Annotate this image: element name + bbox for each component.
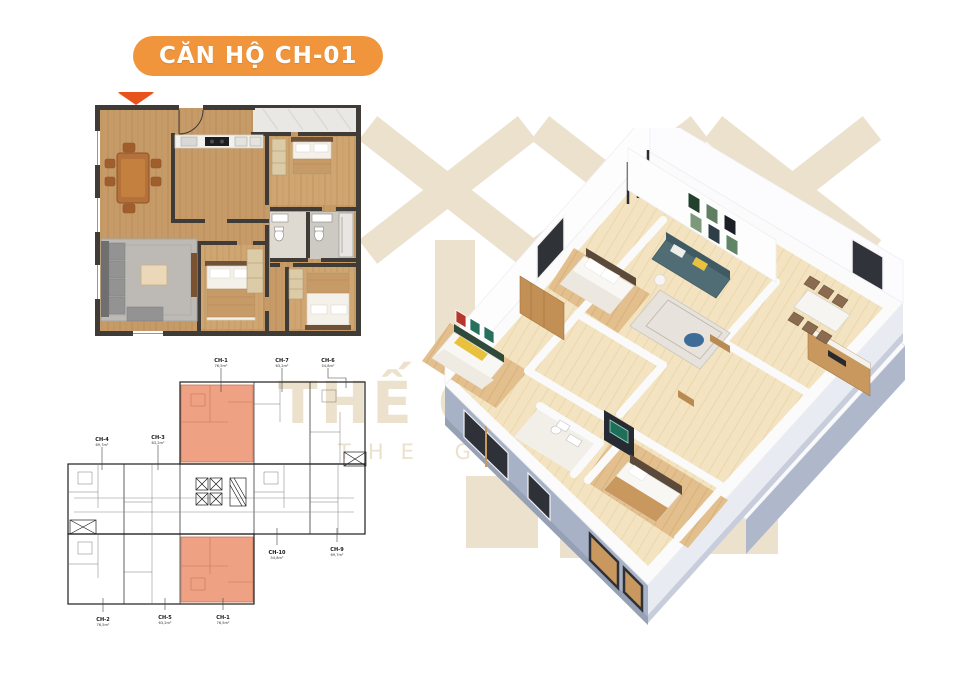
highlight-unit-top xyxy=(181,385,253,462)
flyer-page: { "badge": { "label": "CĂN HỘ CH-01" }, … xyxy=(0,0,960,678)
apartment-title-badge: CĂN HỘ CH-01 xyxy=(133,36,383,76)
balcony xyxy=(251,107,356,136)
svg-text:63,2m²: 63,2m² xyxy=(152,441,166,445)
tv-cabinet xyxy=(191,253,197,297)
kitchen-counter xyxy=(175,135,263,148)
wardrobe-2 xyxy=(247,249,263,293)
svg-text:69,7m²: 69,7m² xyxy=(331,553,345,557)
highlight-unit-bottom xyxy=(181,537,253,602)
living-room xyxy=(101,239,197,321)
bed-1 xyxy=(272,137,333,175)
svg-text:69,7m²: 69,7m² xyxy=(96,443,110,447)
svg-text:76,5m²: 76,5m² xyxy=(97,623,111,627)
sofa-back xyxy=(101,241,109,317)
svg-text:63,2m²: 63,2m² xyxy=(159,621,173,625)
svg-text:54,8m²: 54,8m² xyxy=(271,556,285,560)
elevator-core-icon xyxy=(196,478,246,506)
svg-text:63,2m²: 63,2m² xyxy=(276,364,290,368)
svg-text:76,5m²: 76,5m² xyxy=(217,621,231,625)
building-keyplan: CH-1 76,5m² CH-7 63,2m² CH-6 54,8m² CH-4… xyxy=(58,352,370,632)
side-table xyxy=(655,275,666,286)
svg-text:54,8m²: 54,8m² xyxy=(322,364,336,368)
coffee-table xyxy=(141,265,167,285)
badge-pointer-icon xyxy=(117,92,155,105)
ottoman xyxy=(684,333,704,347)
render-3d xyxy=(378,128,923,643)
floorplan-2d xyxy=(93,103,363,338)
svg-text:76,5m²: 76,5m² xyxy=(215,364,229,368)
